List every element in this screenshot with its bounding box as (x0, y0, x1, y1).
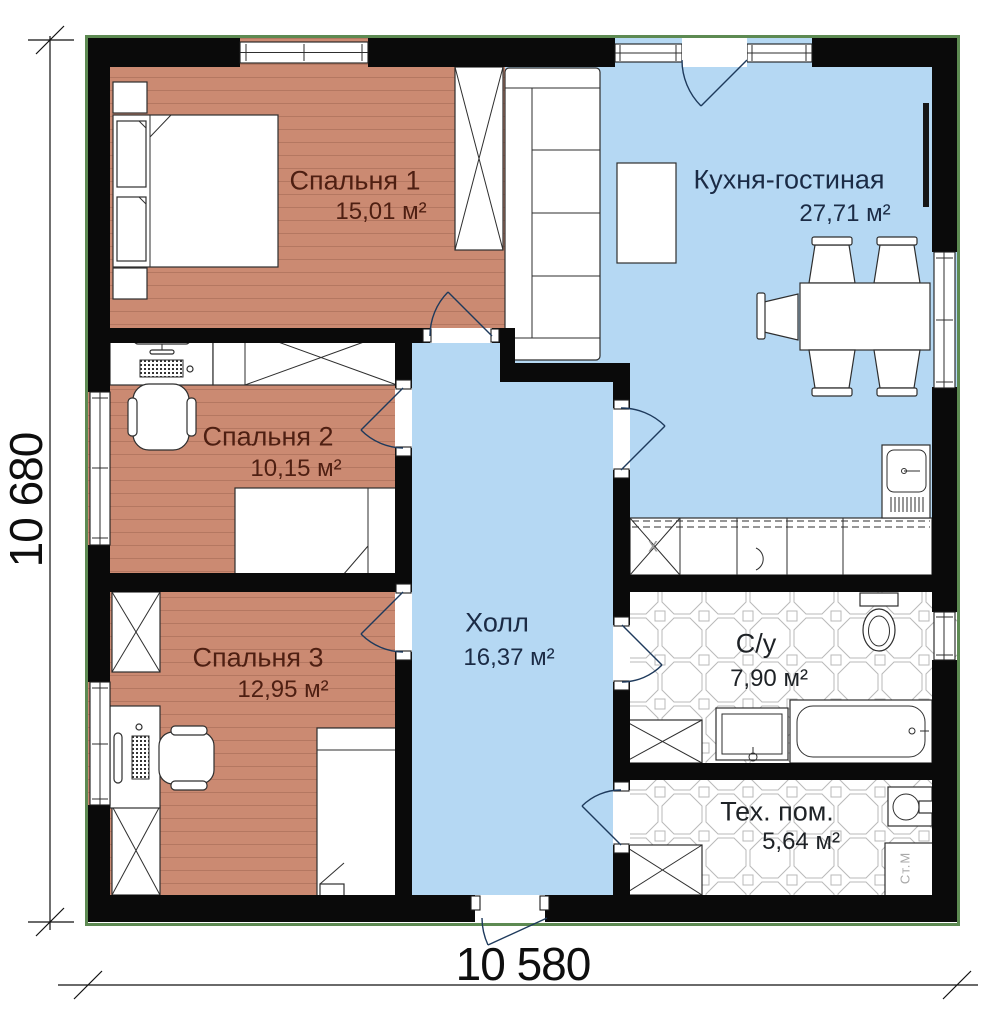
pillow (117, 197, 146, 261)
wall-segment (613, 470, 630, 625)
desk-chair (159, 732, 214, 784)
nightstand (113, 268, 147, 299)
hob-mark-label: х (648, 537, 658, 556)
single-bed (317, 728, 398, 897)
monitor-base (150, 350, 174, 354)
monitor (114, 733, 122, 783)
chair (874, 350, 920, 388)
toilet-tank (860, 593, 898, 606)
keyboard (140, 360, 183, 377)
chair-back (812, 237, 852, 245)
vanity-sink (716, 708, 788, 760)
wall-segment (932, 660, 957, 922)
sofa (505, 68, 600, 360)
room-label-bedroom-3: Спальня 3 (192, 645, 323, 672)
door-opening (430, 328, 492, 343)
mouse (136, 724, 142, 730)
wall-segment (110, 573, 412, 592)
bathtub (790, 700, 932, 763)
window (747, 44, 812, 62)
floor-plan-drawing (0, 0, 1007, 1031)
nightstand (113, 82, 147, 113)
wall-segment (630, 763, 932, 780)
pillow (117, 121, 146, 187)
room-label-bedroom-1: Спальня 1 (289, 168, 420, 195)
window (90, 392, 110, 545)
room-label-bedroom-2: Спальня 2 (202, 424, 333, 451)
room-label-bathroom: С/у (736, 631, 777, 658)
wall-segment (395, 448, 412, 592)
keyboard (132, 736, 149, 779)
room-area-kitchen-living: 27,71 м² (799, 202, 890, 226)
room-area-bedroom-2: 10,15 м² (250, 457, 341, 481)
floor-plan: Спальня 1 15,01 м² Кухня-гостиная 27,71 … (0, 0, 1007, 1031)
wall-segment (88, 38, 240, 67)
room-area-bedroom-3: 12,95 м² (237, 678, 328, 702)
door-opening (613, 790, 630, 845)
dimension-height: 10 680 (3, 433, 49, 568)
door-opening (395, 388, 412, 448)
wall-segment (88, 38, 110, 392)
room-area-bedroom-1: 15,01 м² (335, 200, 426, 224)
door-opening (395, 592, 412, 652)
room-area-bathroom: 7,90 м² (730, 667, 808, 691)
window (934, 612, 955, 660)
room-label-kitchen-living: Кухня-гостиная (693, 167, 884, 194)
chair-back (757, 293, 765, 339)
door-opening (682, 38, 747, 67)
chair (874, 245, 920, 283)
wall-segment (88, 805, 110, 922)
dining-table (800, 283, 930, 350)
single-bed (235, 488, 397, 575)
wall-segment (368, 38, 615, 67)
chair (764, 294, 798, 340)
chair-armrest (128, 398, 137, 436)
mouse (187, 366, 193, 372)
wall-segment (395, 652, 412, 895)
toilet-bowl (863, 609, 895, 651)
chair (809, 350, 855, 388)
washing-machine-label: Ст.М (899, 852, 912, 884)
room-area-hall: 16,37 м² (463, 646, 554, 670)
window (90, 682, 110, 805)
door-opening (613, 408, 630, 470)
wall-segment (88, 895, 475, 922)
chair-back (877, 388, 917, 396)
chair (809, 245, 855, 283)
wall-segment (932, 387, 957, 612)
room-label-utility: Тех. пом. (720, 799, 834, 826)
wall-segment (500, 363, 630, 382)
wall-segment (932, 38, 957, 252)
chair-armrest (187, 398, 196, 436)
room-area-utility: 5,64 м² (762, 830, 840, 854)
coffee-table (617, 163, 676, 263)
wall-segment (630, 575, 932, 592)
door-opening (613, 625, 630, 682)
window (240, 42, 368, 63)
window (615, 44, 682, 62)
chair-armrest (171, 781, 207, 790)
chair-armrest (171, 726, 207, 735)
wall-segment (88, 545, 110, 682)
wall-segment (110, 328, 430, 343)
window (934, 252, 955, 388)
door-opening (475, 895, 545, 922)
dimension-width: 10 580 (456, 941, 591, 987)
room-label-hall: Холл (465, 610, 529, 637)
chair-back (877, 237, 917, 245)
wall-segment (613, 682, 630, 790)
tv (923, 103, 929, 207)
desk-chair (133, 384, 189, 450)
wall-segment (545, 895, 957, 922)
chair-back (812, 388, 852, 396)
